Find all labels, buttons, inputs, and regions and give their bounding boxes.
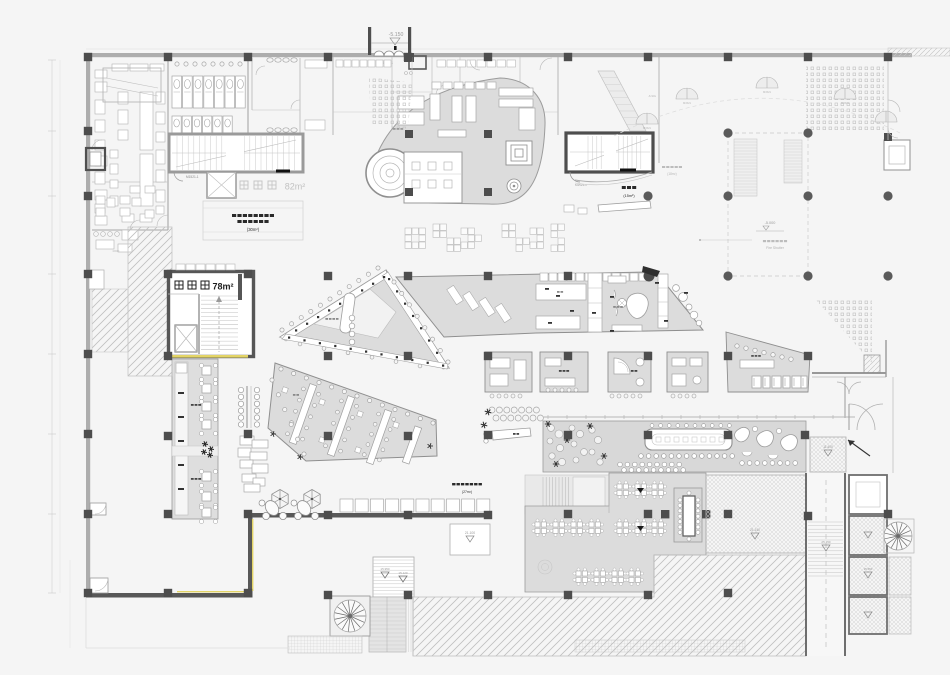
svg-text:M1521: M1521 bbox=[683, 101, 691, 105]
svg-text:-5.150: -5.150 bbox=[389, 32, 404, 38]
svg-text:15.950: 15.950 bbox=[380, 567, 390, 571]
svg-text:M1521-1: M1521-1 bbox=[186, 175, 199, 179]
svg-text:M1521: M1521 bbox=[763, 90, 771, 94]
svg-text:78m²: 78m² bbox=[212, 282, 233, 292]
svg-text:0000: 0000 bbox=[113, 249, 120, 253]
svg-text:25.150: 25.150 bbox=[821, 540, 831, 544]
svg-text:(18m²): (18m²) bbox=[667, 172, 676, 176]
svg-text:M1521: M1521 bbox=[643, 126, 651, 130]
svg-text:82m²: 82m² bbox=[285, 182, 306, 192]
svg-text:21.140: 21.140 bbox=[750, 528, 760, 532]
svg-text:(27m²): (27m²) bbox=[462, 490, 472, 494]
svg-text:(30m²): (30m²) bbox=[247, 227, 260, 232]
svg-text:11.400: 11.400 bbox=[823, 445, 833, 449]
svg-text:M1521: M1521 bbox=[841, 101, 849, 105]
svg-text:Fire Shutter: Fire Shutter bbox=[766, 246, 785, 250]
svg-text:-6.90x: -6.90x bbox=[648, 94, 657, 98]
svg-text:(15m²): (15m²) bbox=[623, 194, 635, 198]
svg-text:25.650: 25.650 bbox=[864, 567, 873, 571]
svg-text:21.100: 21.100 bbox=[465, 531, 475, 535]
svg-text:15.120: 15.120 bbox=[398, 571, 408, 575]
svg-text:-5.000: -5.000 bbox=[765, 221, 776, 225]
